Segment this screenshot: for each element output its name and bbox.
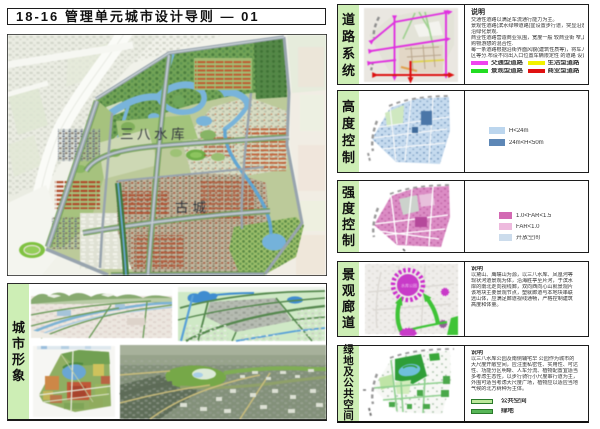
svg-text:水库公园: 水库公园 <box>401 282 417 288</box>
svg-text:古城: 古城 <box>175 200 210 215</box>
svg-text:三八水库: 三八水库 <box>120 127 188 142</box>
